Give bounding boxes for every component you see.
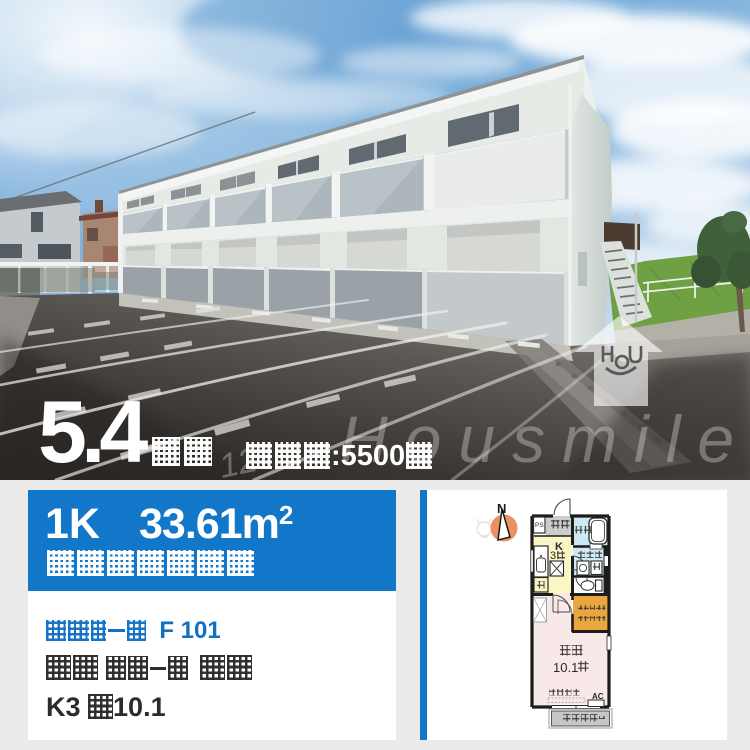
svg-text:3: 3 [550, 550, 556, 562]
svg-text:PS: PS [535, 522, 544, 529]
svg-text:10.1: 10.1 [553, 660, 578, 675]
